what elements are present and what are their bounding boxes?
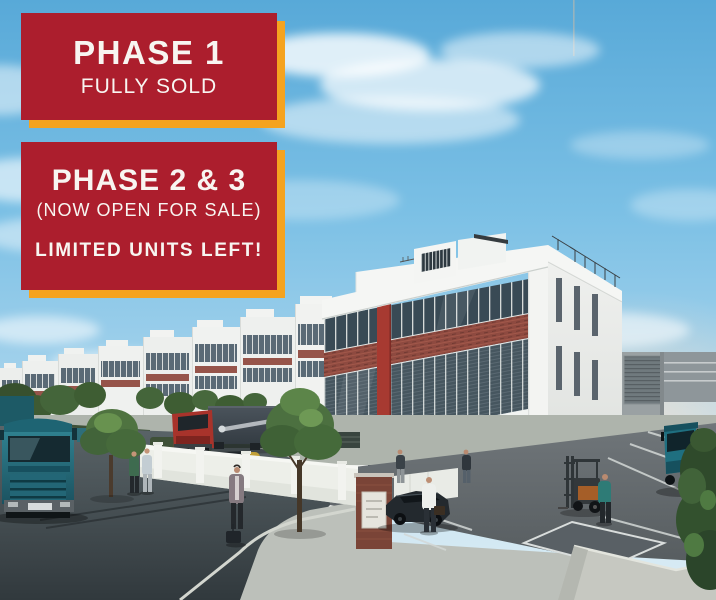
license-plate	[28, 503, 52, 510]
phase2-3-status: (NOW OPEN FOR SALE)	[36, 201, 261, 219]
phase2-3-banner: PHASE 2 & 3 (NOW OPEN FOR SALE) LIMITED …	[21, 142, 277, 290]
phase2-3-note: LIMITED UNITS LEFT!	[35, 241, 263, 260]
gray-warehouse	[664, 352, 716, 402]
promo-image: PHASE 1 FULLY SOLD PHASE 2 & 3 (NOW OPEN…	[0, 0, 716, 600]
phase1-status: FULLY SOLD	[81, 76, 217, 97]
phase2-3-title: PHASE 2 & 3	[52, 166, 246, 196]
phase1-banner: PHASE 1 FULLY SOLD	[21, 13, 277, 120]
luggage-bag	[226, 531, 241, 543]
briefcase	[434, 506, 445, 515]
phase1-title: PHASE 1	[73, 36, 225, 69]
gate-sign	[362, 492, 386, 528]
